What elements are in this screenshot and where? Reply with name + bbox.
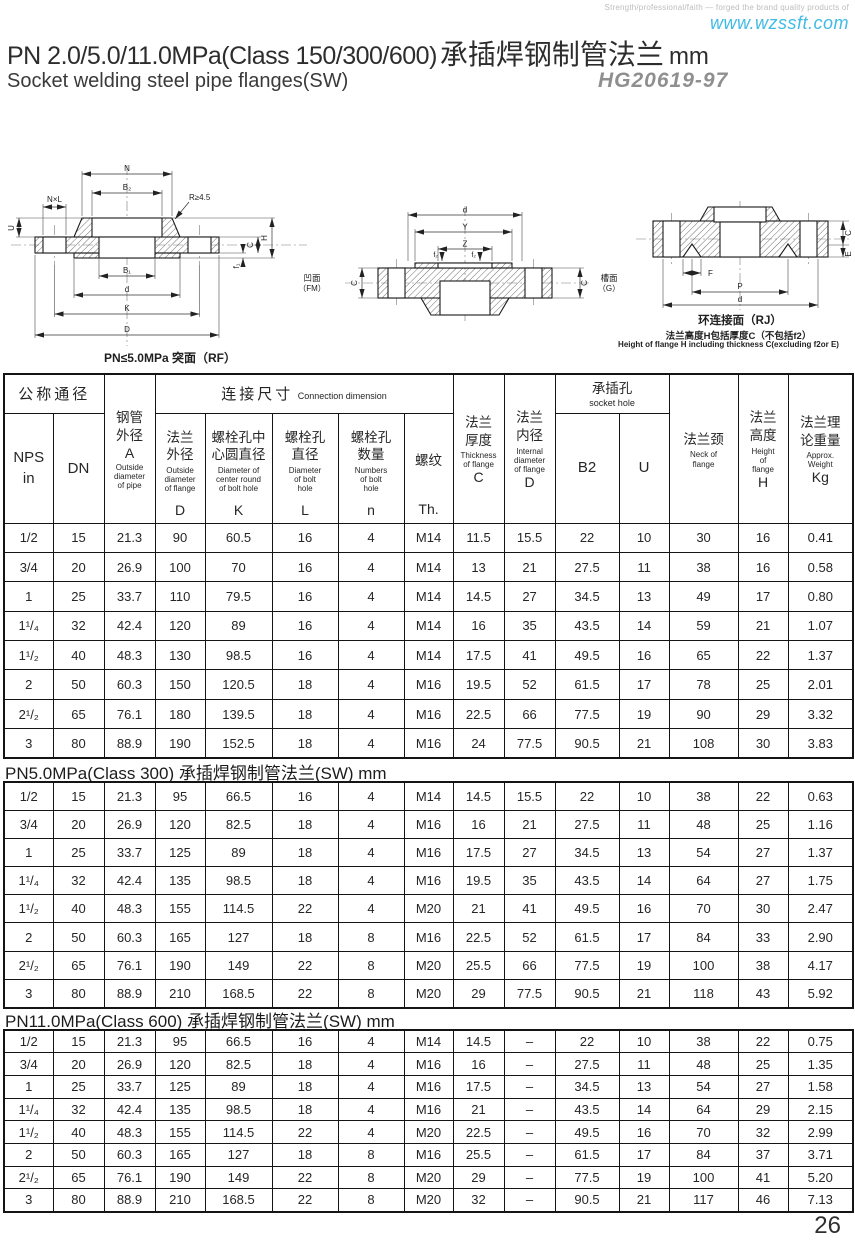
table-row: 1¹/₄3242.412089164M14163543.51459211.07 bbox=[4, 611, 853, 640]
dim-label-d-small: d bbox=[125, 285, 129, 294]
table-cell: M16 bbox=[404, 729, 453, 758]
table-cell: 16 bbox=[272, 552, 338, 581]
header-connection-dimension: 连接尺寸 Connection dimension bbox=[155, 374, 453, 413]
table-row: 12533.712589184M1617.5–34.51354271.58 bbox=[4, 1075, 853, 1098]
table-cell: 17.5 bbox=[453, 838, 504, 866]
table-cell: 82.5 bbox=[205, 810, 272, 838]
table-cell: 2.99 bbox=[788, 1121, 853, 1144]
table-cell: 1¹/₄ bbox=[4, 1098, 53, 1121]
table-cell: 37 bbox=[738, 1143, 788, 1166]
table-cell: 80 bbox=[53, 979, 104, 1007]
table-cell: 21.3 bbox=[104, 523, 155, 552]
table-cell: 16 bbox=[453, 810, 504, 838]
table-cell: 3.71 bbox=[788, 1143, 853, 1166]
table-row: 1/21521.39566.5164M1414.515.5221038220.6… bbox=[4, 782, 853, 810]
table-cell: 70 bbox=[205, 552, 272, 581]
table-cell: 16 bbox=[272, 1030, 338, 1053]
table-cell: M16 bbox=[404, 670, 453, 699]
table-cell: 98.5 bbox=[205, 1098, 272, 1121]
class150-rows: 1/21521.39060.5164M1411.515.5221030160.4… bbox=[4, 523, 853, 758]
table-cell: 18 bbox=[272, 1053, 338, 1076]
table-cell: 22 bbox=[272, 979, 338, 1007]
table-cell: 21 bbox=[504, 552, 555, 581]
table-cell: 13 bbox=[619, 582, 669, 611]
table-cell: 22.5 bbox=[453, 1121, 504, 1144]
table-cell: 25 bbox=[738, 810, 788, 838]
table-cell: 77.5 bbox=[504, 729, 555, 758]
table-cell: 127 bbox=[205, 923, 272, 951]
table-cell: 165 bbox=[155, 1143, 205, 1166]
table-row: 1¹/₂4048.313098.5164M1417.54149.51665221… bbox=[4, 641, 853, 670]
table-cell: 14.5 bbox=[453, 782, 504, 810]
table-cell: 3/4 bbox=[4, 1053, 53, 1076]
table-cell: 16 bbox=[738, 523, 788, 552]
table-row: 3/42026.910070164M14132127.51138160.58 bbox=[4, 552, 853, 581]
table-cell: M20 bbox=[404, 1166, 453, 1189]
dim-label-d: d bbox=[738, 295, 742, 304]
table-cell: 4 bbox=[338, 641, 404, 670]
brand-tagline: Strength/professional/faith — forged the… bbox=[605, 3, 849, 12]
table-cell: 30 bbox=[738, 729, 788, 758]
table-cell: 48.3 bbox=[104, 641, 155, 670]
table-cell: 1 bbox=[4, 582, 53, 611]
table-cell: 4 bbox=[338, 838, 404, 866]
table-cell: 18 bbox=[272, 1098, 338, 1121]
table-cell: 0.41 bbox=[788, 523, 853, 552]
dim-label-d: d bbox=[463, 206, 467, 215]
table-cell: – bbox=[504, 1098, 555, 1121]
table-cell: 65 bbox=[53, 1166, 104, 1189]
table-cell: 76.1 bbox=[104, 1166, 155, 1189]
table-cell: 27.5 bbox=[555, 810, 619, 838]
table-cell: 3/4 bbox=[4, 552, 53, 581]
table-row: 3/42026.912082.5184M16162127.51148251.16 bbox=[4, 810, 853, 838]
table-cell: 8 bbox=[338, 1166, 404, 1189]
drawing-rj-caption: 环连接面（RJ） bbox=[655, 312, 825, 328]
table-cell: 0.58 bbox=[788, 552, 853, 581]
spec-table-class150: 公称通径 钢管 外径AOutside diameter of pipe 连接尺寸… bbox=[3, 373, 854, 759]
table-cell: 180 bbox=[155, 699, 205, 728]
drawing-rj-flange: C E F P d bbox=[618, 200, 855, 312]
table-cell: M20 bbox=[404, 895, 453, 923]
table-cell: 40 bbox=[53, 641, 104, 670]
table-cell: 4 bbox=[338, 670, 404, 699]
table-cell: 2 bbox=[4, 670, 53, 699]
table-cell: 1/2 bbox=[4, 1030, 53, 1053]
table-cell: 95 bbox=[155, 1030, 205, 1053]
table-row: 2¹/₂6576.1180139.5184M1622.56677.5199029… bbox=[4, 699, 853, 728]
table-row: 25060.3165127188M1625.5–61.51784373.71 bbox=[4, 1143, 853, 1166]
table-cell: 0.80 bbox=[788, 582, 853, 611]
table-cell: 22 bbox=[738, 782, 788, 810]
table-cell: 34.5 bbox=[555, 582, 619, 611]
table-cell: M20 bbox=[404, 951, 453, 979]
table-cell: – bbox=[504, 1030, 555, 1053]
table-cell: 155 bbox=[155, 895, 205, 923]
table-cell: 22 bbox=[555, 782, 619, 810]
table-cell: 4 bbox=[338, 582, 404, 611]
table-cell: 4 bbox=[338, 1075, 404, 1098]
page-title: PN 2.0/5.0/11.0MPa(Class 150/300/600)承插焊… bbox=[7, 33, 709, 73]
table-cell: 16 bbox=[272, 611, 338, 640]
table-cell: 2 bbox=[4, 923, 53, 951]
table-cell: 26.9 bbox=[104, 1053, 155, 1076]
table-cell: 1¹/₂ bbox=[4, 1121, 53, 1144]
table-cell: 38 bbox=[669, 1030, 738, 1053]
table-cell: 49.5 bbox=[555, 1121, 619, 1144]
dim-label-u: U bbox=[7, 225, 16, 231]
table-cell: 54 bbox=[669, 1075, 738, 1098]
table-cell: 16 bbox=[272, 782, 338, 810]
table-cell: 48 bbox=[669, 1053, 738, 1076]
table-cell: 48.3 bbox=[104, 895, 155, 923]
table-cell: 61.5 bbox=[555, 923, 619, 951]
table-cell: M16 bbox=[404, 699, 453, 728]
table-cell: 19.5 bbox=[453, 670, 504, 699]
table-cell: 84 bbox=[669, 923, 738, 951]
table-cell: 22 bbox=[272, 1166, 338, 1189]
page-number: 26 bbox=[814, 1212, 841, 1240]
table-cell: 125 bbox=[155, 1075, 205, 1098]
table-cell: 190 bbox=[155, 729, 205, 758]
table-cell: 17.5 bbox=[453, 1075, 504, 1098]
table-cell: 18 bbox=[272, 867, 338, 895]
table-cell: 8 bbox=[338, 1143, 404, 1166]
table-cell: 168.5 bbox=[205, 979, 272, 1007]
table-cell: 76.1 bbox=[104, 699, 155, 728]
table-cell: 38 bbox=[669, 782, 738, 810]
table-cell: 150 bbox=[155, 670, 205, 699]
table-row: 38088.9190152.5184M162477.590.521108303.… bbox=[4, 729, 853, 758]
table-cell: 127 bbox=[205, 1143, 272, 1166]
table-cell: 7.13 bbox=[788, 1189, 853, 1212]
table-cell: 165 bbox=[155, 923, 205, 951]
table-cell: 15.5 bbox=[504, 782, 555, 810]
header-bolt-number: 螺栓孔 数量Numbers of bolt holen bbox=[338, 413, 404, 523]
table-cell: 82.5 bbox=[205, 1053, 272, 1076]
table-cell: 168.5 bbox=[205, 1189, 272, 1212]
class600-rows: 1/21521.39566.5164M1414.5–221038220.753/… bbox=[4, 1030, 853, 1212]
table-cell: 22 bbox=[272, 1121, 338, 1144]
table-cell: M14 bbox=[404, 641, 453, 670]
dim-label-f1: f₁ bbox=[232, 263, 241, 268]
table-cell: 21 bbox=[453, 895, 504, 923]
header-bolt-hole-diameter: 螺栓孔 直径Diameter of bolt holeL bbox=[272, 413, 338, 523]
table-cell: 25 bbox=[53, 582, 104, 611]
table-cell: 60.5 bbox=[205, 523, 272, 552]
drawing-rj-note-en: Height of flange H including thickness C… bbox=[602, 340, 855, 349]
dim-label-h: H bbox=[260, 235, 269, 241]
table-cell: 14.5 bbox=[453, 582, 504, 611]
table-cell: 78 bbox=[669, 670, 738, 699]
table-cell: 49.5 bbox=[555, 641, 619, 670]
table-cell: 35 bbox=[504, 867, 555, 895]
table-cell: 21 bbox=[619, 979, 669, 1007]
table-cell: 29 bbox=[453, 979, 504, 1007]
table-cell: 33.7 bbox=[104, 582, 155, 611]
table-row: 1¹/₂4048.3155114.5224M2022.5–49.51670322… bbox=[4, 1121, 853, 1144]
header-pipe-od: 钢管 外径AOutside diameter of pipe bbox=[104, 374, 155, 523]
table-cell: – bbox=[504, 1121, 555, 1144]
table-row: 1/21521.39060.5164M1411.515.5221030160.4… bbox=[4, 523, 853, 552]
table-cell: 18 bbox=[272, 729, 338, 758]
spec-table-class600: 1/21521.39566.5164M1414.5–221038220.753/… bbox=[3, 1029, 854, 1213]
table-cell: 30 bbox=[669, 523, 738, 552]
table-cell: 21.3 bbox=[104, 1030, 155, 1053]
table-cell: M16 bbox=[404, 810, 453, 838]
table-cell: 4 bbox=[338, 782, 404, 810]
table-cell: 3.83 bbox=[788, 729, 853, 758]
table-cell: 210 bbox=[155, 1189, 205, 1212]
table-cell: 60.3 bbox=[104, 1143, 155, 1166]
table-cell: 98.5 bbox=[205, 867, 272, 895]
spec-table-class300: 1/21521.39566.5164M1414.515.5221038220.6… bbox=[3, 781, 854, 1009]
table-cell: 19 bbox=[619, 1166, 669, 1189]
table-cell: M16 bbox=[404, 1143, 453, 1166]
table-cell: – bbox=[504, 1075, 555, 1098]
table-cell: 61.5 bbox=[555, 670, 619, 699]
dim-label-c: C bbox=[246, 242, 255, 248]
table-cell: 43.5 bbox=[555, 611, 619, 640]
table-cell: 20 bbox=[53, 810, 104, 838]
table-cell: 61.5 bbox=[555, 1143, 619, 1166]
table-cell: 46 bbox=[738, 1189, 788, 1212]
table-cell: 15 bbox=[53, 523, 104, 552]
table-cell: 8 bbox=[338, 923, 404, 951]
dim-label-c-left: C bbox=[350, 280, 359, 286]
header-thread: 螺纹Th. bbox=[404, 413, 453, 523]
page-title-unit: mm bbox=[669, 43, 709, 70]
table-cell: 11 bbox=[619, 1053, 669, 1076]
table-cell: 64 bbox=[669, 867, 738, 895]
table-cell: 100 bbox=[155, 552, 205, 581]
face-label-g-cn: 槽面 bbox=[600, 273, 618, 283]
face-label-fm-en: （FM） bbox=[298, 284, 326, 293]
table-cell: 16 bbox=[738, 552, 788, 581]
table-cell: – bbox=[504, 1143, 555, 1166]
table-cell: 89 bbox=[205, 611, 272, 640]
table-cell: 32 bbox=[53, 1098, 104, 1121]
table-cell: 118 bbox=[669, 979, 738, 1007]
table-cell: 10 bbox=[619, 1030, 669, 1053]
table-cell: 10 bbox=[619, 523, 669, 552]
table-cell: 21 bbox=[504, 810, 555, 838]
table-cell: 25 bbox=[738, 670, 788, 699]
table-cell: 2.01 bbox=[788, 670, 853, 699]
table-cell: 4 bbox=[338, 523, 404, 552]
table-row: 38088.9210168.5228M202977.590.521118435.… bbox=[4, 979, 853, 1007]
table-cell: 14.5 bbox=[453, 1030, 504, 1053]
table-cell: 90 bbox=[669, 699, 738, 728]
table-cell: 43 bbox=[738, 979, 788, 1007]
table-cell: 13 bbox=[453, 552, 504, 581]
dim-label-d-big: D bbox=[124, 325, 130, 334]
table-cell: 42.4 bbox=[104, 867, 155, 895]
table-cell: 4 bbox=[338, 895, 404, 923]
table-cell: 29 bbox=[453, 1166, 504, 1189]
table-cell: 29 bbox=[738, 699, 788, 728]
table-cell: 27 bbox=[504, 838, 555, 866]
table-cell: 4 bbox=[338, 552, 404, 581]
table-cell: 114.5 bbox=[205, 1121, 272, 1144]
table-cell: 149 bbox=[205, 951, 272, 979]
table-cell: 34.5 bbox=[555, 1075, 619, 1098]
table-row: 1¹/₂4048.3155114.5224M20214149.51670302.… bbox=[4, 895, 853, 923]
table-cell: 120 bbox=[155, 611, 205, 640]
table-cell: 2¹/₂ bbox=[4, 699, 53, 728]
table-cell: 16 bbox=[619, 641, 669, 670]
table-cell: 77.5 bbox=[555, 1166, 619, 1189]
table-cell: 16 bbox=[272, 582, 338, 611]
dim-label-p: P bbox=[737, 282, 742, 291]
table-cell: 4 bbox=[338, 729, 404, 758]
table-cell: 25 bbox=[53, 838, 104, 866]
table-cell: M14 bbox=[404, 582, 453, 611]
dim-label-c: C bbox=[844, 230, 853, 236]
dim-label-e: E bbox=[844, 251, 853, 256]
table-cell: 120.5 bbox=[205, 670, 272, 699]
table-cell: 65 bbox=[53, 951, 104, 979]
table-cell: 15 bbox=[53, 1030, 104, 1053]
table-cell: 42.4 bbox=[104, 611, 155, 640]
table-cell: 66 bbox=[504, 951, 555, 979]
table-cell: 17 bbox=[619, 1143, 669, 1166]
table-row: 12533.712589184M1617.52734.51354271.37 bbox=[4, 838, 853, 866]
table-cell: 11 bbox=[619, 810, 669, 838]
table-cell: 20 bbox=[53, 1053, 104, 1076]
table-cell: 15.5 bbox=[504, 523, 555, 552]
table-cell: 16 bbox=[619, 1121, 669, 1144]
table-cell: 4 bbox=[338, 1121, 404, 1144]
table-cell: 54 bbox=[669, 838, 738, 866]
table-cell: 48 bbox=[669, 810, 738, 838]
table-cell: 120 bbox=[155, 810, 205, 838]
table-cell: 210 bbox=[155, 979, 205, 1007]
table-cell: 21.3 bbox=[104, 782, 155, 810]
table-cell: 16 bbox=[272, 641, 338, 670]
table-cell: 43.5 bbox=[555, 1098, 619, 1121]
table-cell: 17 bbox=[738, 582, 788, 611]
table-cell: 1¹/₄ bbox=[4, 867, 53, 895]
table-cell: 22 bbox=[555, 1030, 619, 1053]
table-cell: 3 bbox=[4, 729, 53, 758]
table-cell: 18 bbox=[272, 1075, 338, 1098]
table-cell: 27 bbox=[738, 1075, 788, 1098]
table-cell: 76.1 bbox=[104, 951, 155, 979]
header-flange-od: 法兰 外径Outside diameter of flangeD bbox=[155, 413, 205, 523]
table-cell: 27.5 bbox=[555, 1053, 619, 1076]
table-cell: 4 bbox=[338, 611, 404, 640]
table-cell: 70 bbox=[669, 1121, 738, 1144]
standard-number: HG20619-97 bbox=[598, 69, 728, 93]
table-cell: 43.5 bbox=[555, 867, 619, 895]
table-row: 12533.711079.5164M1414.52734.51349170.80 bbox=[4, 582, 853, 611]
table-cell: 117 bbox=[669, 1189, 738, 1212]
table-cell: M14 bbox=[404, 552, 453, 581]
table-cell: 22 bbox=[738, 1030, 788, 1053]
table-cell: 18 bbox=[272, 923, 338, 951]
table-cell: 4.17 bbox=[788, 951, 853, 979]
table-cell: 65 bbox=[53, 699, 104, 728]
header-socket-hole: 承插孔socket hole bbox=[555, 374, 669, 413]
table-cell: 19 bbox=[619, 699, 669, 728]
table-cell: – bbox=[504, 1053, 555, 1076]
table-cell: 1.75 bbox=[788, 867, 853, 895]
table-cell: 4 bbox=[338, 1053, 404, 1076]
table-cell: 1.16 bbox=[788, 810, 853, 838]
table-cell: 22.5 bbox=[453, 923, 504, 951]
table-cell: 70 bbox=[669, 895, 738, 923]
table-cell: 114.5 bbox=[205, 895, 272, 923]
table-cell: 4 bbox=[338, 699, 404, 728]
table-cell: 135 bbox=[155, 867, 205, 895]
header-nominal-diameter: 公称通径 bbox=[4, 374, 104, 413]
face-label-g-en: （G） bbox=[598, 284, 620, 293]
table-cell: 1 bbox=[4, 838, 53, 866]
table-cell: 80 bbox=[53, 729, 104, 758]
header-bolt-circle: 螺栓孔中 心圆直径Diameter of center round of bol… bbox=[205, 413, 272, 523]
table-cell: 26.9 bbox=[104, 552, 155, 581]
table-row: 2¹/₂6576.1190149228M2025.56677.519100384… bbox=[4, 951, 853, 979]
table-cell: 18 bbox=[272, 699, 338, 728]
dim-label-f2: f₂ bbox=[433, 252, 438, 259]
table-cell: 17 bbox=[619, 923, 669, 951]
table-cell: 30 bbox=[738, 895, 788, 923]
table-cell: 18 bbox=[272, 810, 338, 838]
table-row: 1¹/₄3242.413598.5184M1621–43.51464292.15 bbox=[4, 1098, 853, 1121]
header-dn: DN bbox=[53, 413, 104, 523]
table-cell: 5.20 bbox=[788, 1166, 853, 1189]
table-cell: M16 bbox=[404, 838, 453, 866]
table-cell: 18 bbox=[272, 670, 338, 699]
drawing-rf-flange: N B₂ R≥4.5 N×L U B₁ d K D f₁ C H bbox=[5, 163, 325, 348]
table-cell: M20 bbox=[404, 1189, 453, 1212]
table-cell: 152.5 bbox=[205, 729, 272, 758]
table-cell: 22 bbox=[555, 523, 619, 552]
table-cell: 32 bbox=[53, 867, 104, 895]
table-cell: 1 bbox=[4, 1075, 53, 1098]
table-cell: 25.5 bbox=[453, 1143, 504, 1166]
table-cell: M16 bbox=[404, 867, 453, 895]
table-cell: 139.5 bbox=[205, 699, 272, 728]
table-cell: M16 bbox=[404, 1098, 453, 1121]
table-cell: 66 bbox=[504, 699, 555, 728]
table-cell: 4 bbox=[338, 1030, 404, 1053]
table-cell: 22 bbox=[272, 951, 338, 979]
header-u: U bbox=[619, 413, 669, 523]
table-cell: 20 bbox=[53, 552, 104, 581]
table-cell: 50 bbox=[53, 1143, 104, 1166]
table-cell: 2.47 bbox=[788, 895, 853, 923]
table-cell: 2 bbox=[4, 1143, 53, 1166]
table-cell: 13 bbox=[619, 838, 669, 866]
table-cell: 66.5 bbox=[205, 782, 272, 810]
header-flange-height: 法兰 高度Height of flangeH bbox=[738, 374, 788, 523]
table-cell: 17.5 bbox=[453, 641, 504, 670]
class300-rows: 1/21521.39566.5164M1414.515.5221038220.6… bbox=[4, 782, 853, 1008]
table-cell: 77.5 bbox=[504, 979, 555, 1007]
table-row: 25060.3150120.5184M1619.55261.51778252.0… bbox=[4, 670, 853, 699]
table-cell: 66.5 bbox=[205, 1030, 272, 1053]
table-cell: 77.5 bbox=[555, 699, 619, 728]
table-cell: 108 bbox=[669, 729, 738, 758]
table-cell: 79.5 bbox=[205, 582, 272, 611]
table-cell: 22 bbox=[738, 641, 788, 670]
table-cell: 22.5 bbox=[453, 699, 504, 728]
table-cell: M20 bbox=[404, 979, 453, 1007]
table-row: 2¹/₂6576.1190149228M2029–77.519100415.20 bbox=[4, 1166, 853, 1189]
table-cell: 42.4 bbox=[104, 1098, 155, 1121]
